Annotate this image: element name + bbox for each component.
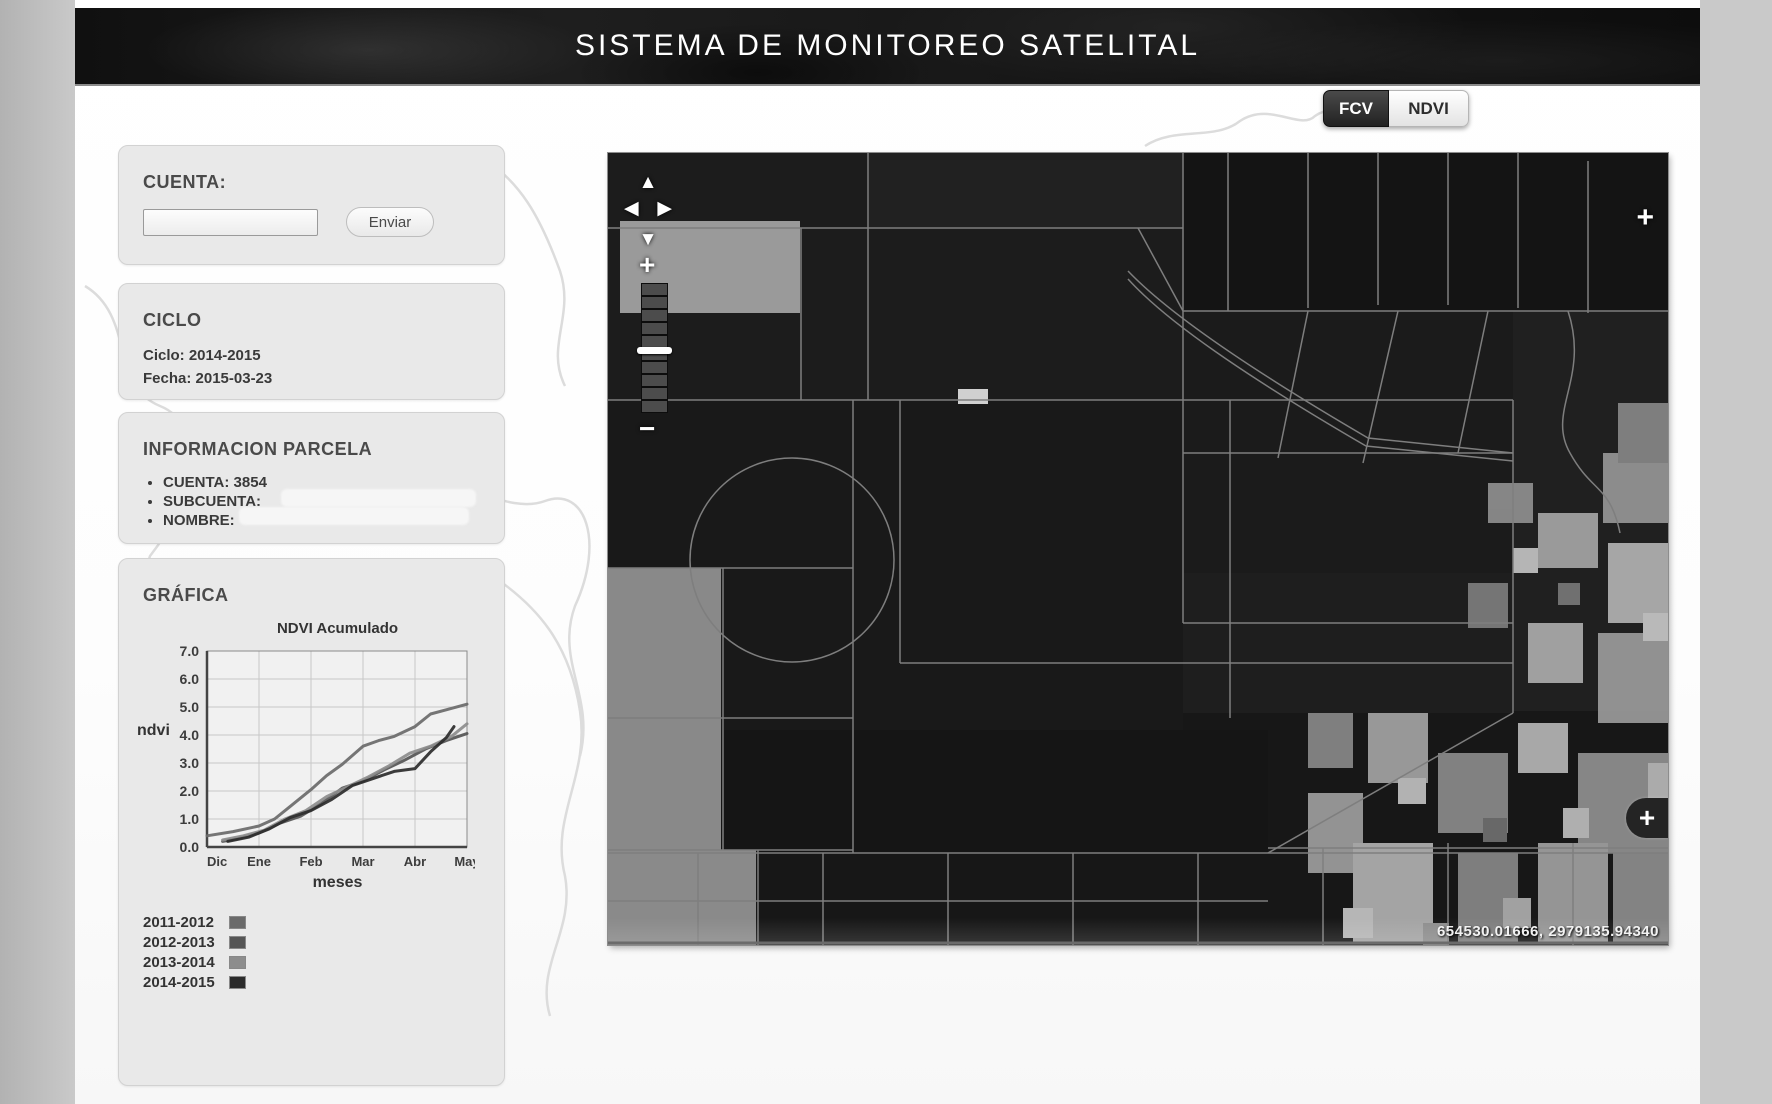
legend-item: 2014-2015 (143, 974, 480, 991)
svg-text:Mar: Mar (351, 854, 374, 869)
zoom-slider-handle[interactable] (637, 347, 672, 354)
svg-text:7.0: 7.0 (180, 643, 200, 659)
grafica-panel: GRÁFICA NDVI Acumulado ndvi 0.01.02.03.0… (118, 558, 505, 1086)
cuenta-label: CUENTA: (143, 172, 480, 193)
layer-toggle: FCV NDVI (1323, 90, 1469, 127)
legend-swatch (229, 916, 246, 929)
enviar-button[interactable]: Enviar (346, 207, 434, 237)
chart-ylabel: ndvi (137, 722, 170, 740)
legend-swatch (229, 936, 246, 949)
svg-text:6.0: 6.0 (180, 671, 200, 687)
app-page: SISTEMA DE MONITOREO SATELITAL FCV NDVI … (0, 0, 1772, 1104)
fcv-button[interactable]: FCV (1323, 90, 1389, 127)
ndvi-button[interactable]: NDVI (1389, 90, 1469, 127)
map-expand-icon[interactable]: + (1636, 203, 1654, 233)
ciclo-title: CICLO (143, 310, 480, 331)
svg-text:Feb: Feb (299, 854, 322, 869)
zoom-in-icon[interactable]: + (639, 251, 655, 279)
redacted-value (281, 489, 476, 507)
svg-text:5.0: 5.0 (180, 699, 200, 715)
svg-text:4.0: 4.0 (180, 727, 200, 743)
map-pan-control: ▲ ◀ ▶ ▼ (622, 173, 674, 249)
ciclo-panel: CICLO Ciclo: 2014-2015 Fecha: 2015-03-23 (118, 283, 505, 400)
pan-left-icon[interactable]: ◀ (624, 199, 639, 218)
parcela-title: INFORMACION PARCELA (143, 439, 480, 460)
chart-title: NDVI Acumulado (195, 620, 480, 637)
map-parcels-graphic (608, 153, 1668, 945)
legend-item: 2012-2013 (143, 934, 480, 951)
plus-icon: + (1639, 802, 1655, 834)
parcela-info-panel: INFORMACION PARCELA CUENTA: 3854 SUBCUEN… (118, 412, 505, 544)
svg-text:3.0: 3.0 (180, 755, 200, 771)
cuenta-panel: CUENTA: Enviar (118, 145, 505, 265)
svg-text:May: May (454, 854, 475, 869)
ndvi-chart: NDVI Acumulado ndvi 0.01.02.03.04.05.06.… (143, 620, 480, 892)
ciclo-value: Ciclo: 2014-2015 (143, 347, 480, 364)
page-title: SISTEMA DE MONITOREO SATELITAL (575, 29, 1200, 63)
svg-text:Dic: Dic (207, 854, 227, 869)
legend-swatch (229, 976, 246, 989)
chart-xlabel: meses (195, 874, 480, 892)
legend-swatch (229, 956, 246, 969)
legend-label: 2014-2015 (143, 974, 221, 991)
legend-label: 2011-2012 (143, 914, 221, 931)
cuenta-input[interactable] (143, 209, 318, 236)
pan-down-icon[interactable]: ▼ (639, 230, 658, 249)
pan-up-icon[interactable]: ▲ (639, 173, 658, 192)
svg-text:2.0: 2.0 (180, 783, 200, 799)
map-viewport[interactable]: ▲ ◀ ▶ ▼ + − + + 654530.01666, 2979135.94… (608, 153, 1668, 945)
legend-item: 2013-2014 (143, 954, 480, 971)
redacted-value (239, 507, 469, 525)
legend-item: 2011-2012 (143, 914, 480, 931)
svg-text:1.0: 1.0 (180, 811, 200, 827)
map-coordinates-readout: 654530.01666, 2979135.94340 (1437, 923, 1659, 940)
app-header: SISTEMA DE MONITOREO SATELITAL (75, 8, 1700, 86)
fecha-value: Fecha: 2015-03-23 (143, 370, 480, 387)
chart-legend: 2011-20122012-20132013-20142014-2015 (143, 914, 480, 991)
map-side-expand-button[interactable]: + (1626, 798, 1668, 838)
svg-text:0.0: 0.0 (180, 839, 200, 855)
chart-plot: 0.01.02.03.04.05.06.07.0DicEneFebMarAbrM… (143, 639, 475, 871)
svg-text:Abr: Abr (404, 854, 426, 869)
legend-label: 2012-2013 (143, 934, 221, 951)
grafica-title: GRÁFICA (143, 585, 480, 606)
zoom-out-icon[interactable]: − (639, 415, 655, 443)
legend-label: 2013-2014 (143, 954, 221, 971)
pan-right-icon[interactable]: ▶ (657, 199, 672, 218)
svg-text:Ene: Ene (247, 854, 271, 869)
